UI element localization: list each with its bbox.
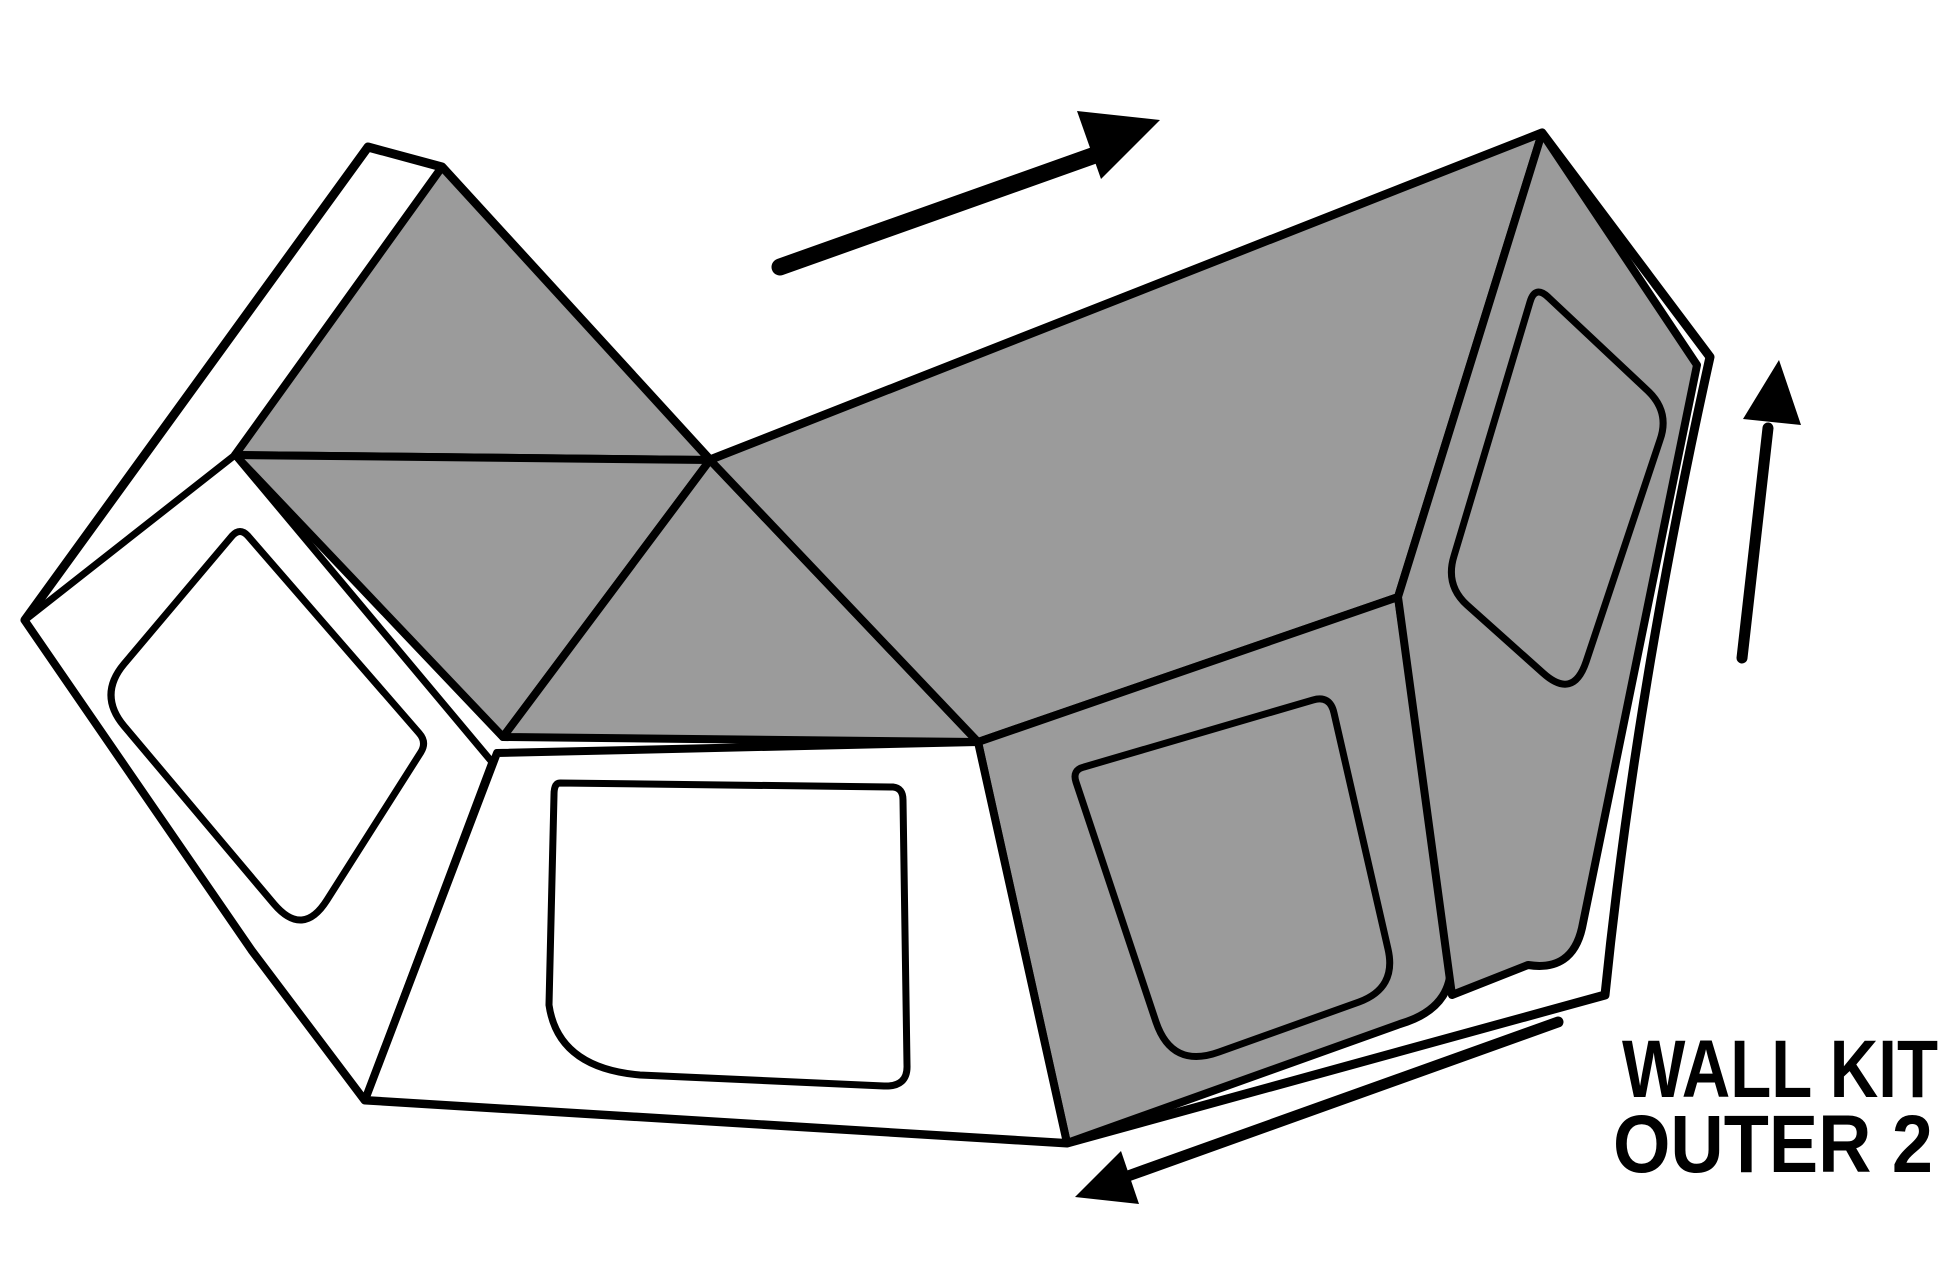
diagram-stage: WALL KITOUTER 2	[0, 0, 1946, 1264]
label-wall-kit-line2: OUTER 2	[1613, 1099, 1933, 1190]
direction-arrow-right	[1742, 360, 1801, 658]
direction-arrow-right-head-icon	[1743, 360, 1801, 425]
wall-kit-diagram: WALL KITOUTER 2	[0, 0, 1946, 1264]
direction-arrow-bottom-head-icon	[1075, 1151, 1139, 1204]
direction-arrow-top	[780, 111, 1160, 267]
direction-arrow-right-shaft	[1742, 428, 1768, 658]
direction-arrow-top-shaft	[780, 155, 1095, 267]
direction-arrow-top-head-icon	[1077, 111, 1160, 179]
